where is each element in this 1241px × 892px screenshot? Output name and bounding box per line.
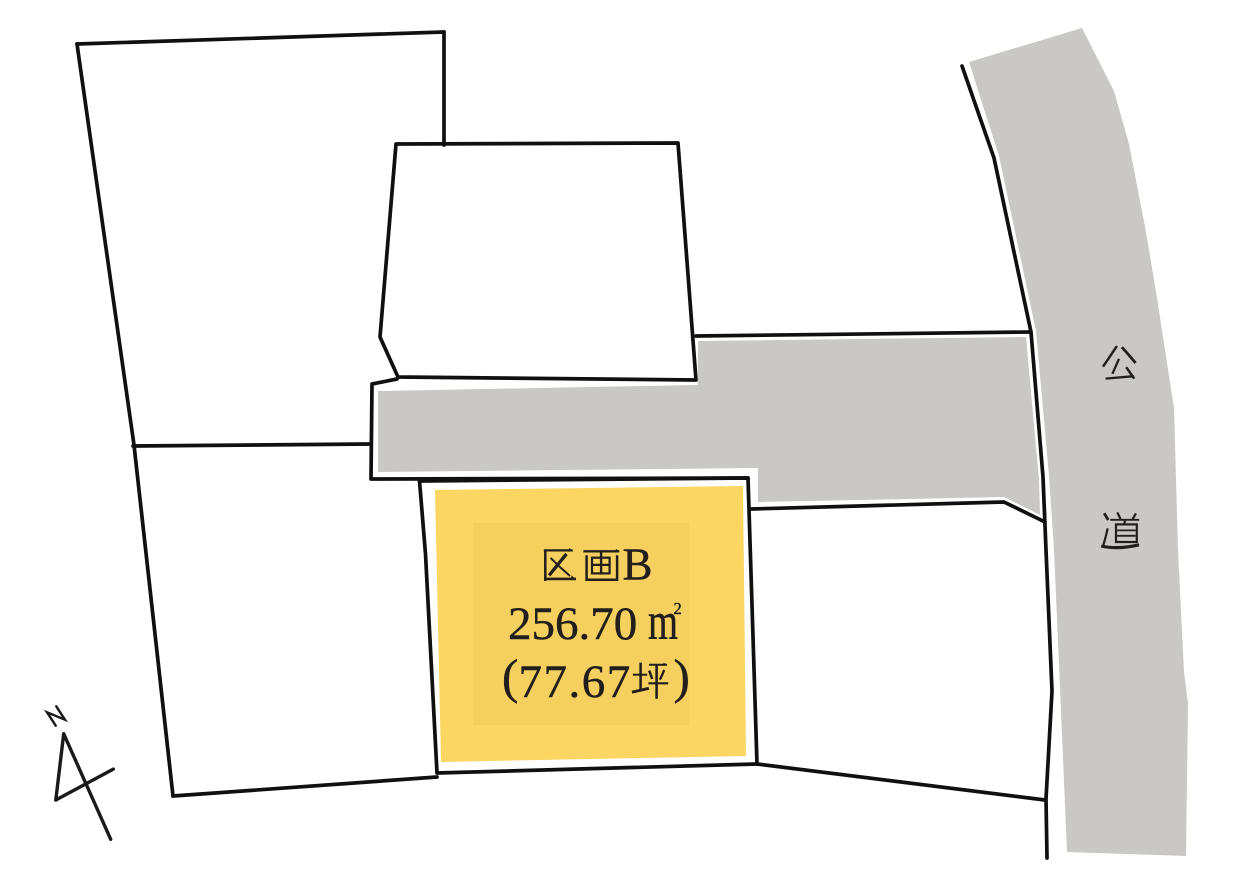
svg-text:256.70: 256.70 bbox=[508, 598, 637, 650]
svg-text:B: B bbox=[623, 540, 653, 590]
svg-text:77.67: 77.67 bbox=[519, 656, 632, 708]
svg-text:2: 2 bbox=[674, 599, 682, 618]
svg-text:(: ( bbox=[502, 649, 518, 704]
svg-text:): ) bbox=[674, 649, 690, 704]
